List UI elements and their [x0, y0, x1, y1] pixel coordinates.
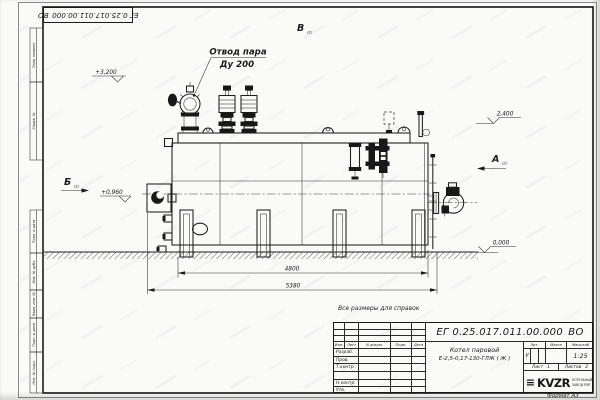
- mass-header: Масса: [545, 341, 566, 348]
- logo-subtitle: КОТЕЛЬНЫЙ ЗАВОД РЭП: [572, 378, 592, 386]
- doc-number-box: ЕГ 0.25.017.011.00.000 ВО: [43, 7, 133, 23]
- margin-box-label: Подп. и дата: [32, 220, 36, 244]
- sheet-label: Лист: [532, 365, 543, 370]
- sign-row-nkontr: Н.контр.: [334, 379, 358, 387]
- col-header-data: Дата: [411, 341, 425, 348]
- grid-cell: [390, 356, 411, 364]
- sign-row-prov: Пров.: [334, 356, 358, 364]
- grid-cell: [358, 363, 390, 371]
- lit-header: Лит.: [523, 341, 545, 348]
- grid-cell: [390, 386, 411, 394]
- margin-box-label: Справ. №: [32, 112, 36, 129]
- logo-subtitle-line2: ЗАВОД РЭП: [572, 383, 592, 387]
- logo-bars-icon: ≡: [526, 377, 535, 388]
- sign-row-razrab: Разраб.: [334, 348, 358, 356]
- doc-number-rotated: ЕГ 0.25.017.011.00.000 ВО: [38, 11, 138, 20]
- lit-value: У: [523, 348, 530, 363]
- valve-flange: [181, 127, 199, 131]
- margin-box-label: Взам. инв. №: [32, 292, 36, 316]
- view-sheet-ref: (2): [74, 185, 80, 189]
- doc-number: ЕГ 0.25.017.011.00.000 ВО: [425, 323, 594, 341]
- scale-header: Масштаб: [566, 341, 594, 348]
- grid-cell: [411, 371, 425, 379]
- sheets-cell: Листов 2: [558, 363, 594, 370]
- grid-cell: [411, 386, 425, 394]
- scanned-drawing-sheet: Перв. примен. Справ. № Подп. и дата Инв.…: [0, 0, 600, 400]
- view-sheet-ref: (2): [502, 162, 508, 166]
- sheet-value: 1: [547, 365, 550, 370]
- grid-cell: [411, 356, 425, 364]
- format-label: Формат А3: [547, 393, 579, 399]
- burner-motor: [446, 187, 460, 196]
- company-logo-cell: ≡ KVZR КОТЕЛЬНЫЙ ЗАВОД РЭП: [523, 370, 594, 394]
- dimension-value: 5380: [286, 284, 301, 290]
- steam-outlet-label: Отвод пара: [209, 48, 266, 58]
- steam-outlet-size: Ду 200: [219, 60, 254, 70]
- grid-cell: [411, 348, 425, 356]
- level-value: 0,000: [493, 241, 510, 247]
- sheet-cell: Лист 1: [523, 363, 558, 370]
- grid-cell: [334, 371, 358, 379]
- margin-box-label: Инв. № подл.: [32, 360, 36, 384]
- grid-cell: [411, 363, 425, 371]
- sign-row-utv: Утв.: [334, 386, 358, 394]
- grid-cell: [390, 348, 411, 356]
- col-header-list: Лист: [344, 341, 358, 348]
- dimension-value: 4800: [285, 267, 300, 273]
- margin-box-label: Инв. № дубл.: [32, 260, 36, 284]
- sign-row-tkontr: Т.контр.: [334, 363, 358, 371]
- level-value: +0,960: [101, 190, 123, 196]
- product-name-cell: Котел паровой Е-2,5-0,17-130-ГЛЖ ( Ж ): [425, 341, 523, 394]
- scale-value: 1:25: [566, 348, 594, 363]
- grid-cell: [358, 371, 390, 379]
- grid-cell: [538, 348, 545, 363]
- handwheel-icon: [168, 94, 177, 107]
- view-letter: А: [491, 154, 499, 165]
- margin-box-label: Подп. и дата: [32, 323, 36, 347]
- sheets-label: Листов: [565, 365, 581, 370]
- sheets-value: 2: [585, 365, 588, 370]
- logo-text: KVZR: [537, 376, 570, 390]
- product-name: Котел паровой: [450, 347, 499, 354]
- title-block: Изм. Лист N докум. Подп. Дата Разраб. Пр…: [333, 322, 593, 393]
- reference-note: Все размеры для справок: [338, 305, 419, 312]
- margin-box-label: Перв. примен.: [32, 42, 36, 68]
- grid-cell: [530, 348, 537, 363]
- view-sheet-ref: (2): [307, 31, 313, 35]
- level-value: +3,200: [95, 70, 117, 76]
- view-letter: В: [297, 23, 304, 34]
- col-header-ndoc: N докум.: [358, 341, 390, 348]
- view-letter: Б: [64, 177, 71, 188]
- product-designation: Е-2,5-0,17-130-ГЛЖ ( Ж ): [439, 356, 511, 362]
- col-header-podp: Подп.: [390, 341, 411, 348]
- grid-cell: [358, 386, 390, 394]
- grid-cell: [358, 348, 390, 356]
- col-header-izm: Изм.: [334, 341, 344, 348]
- level-value: 2,400: [497, 112, 514, 118]
- grid-cell: [358, 379, 390, 387]
- mass-value: [545, 348, 566, 363]
- grid-cell: [390, 363, 411, 371]
- grid-cell: [390, 371, 411, 379]
- grid-cell: [358, 356, 390, 364]
- grid-cell: [411, 379, 425, 387]
- grid-cell: [390, 379, 411, 387]
- ground: [44, 252, 478, 259]
